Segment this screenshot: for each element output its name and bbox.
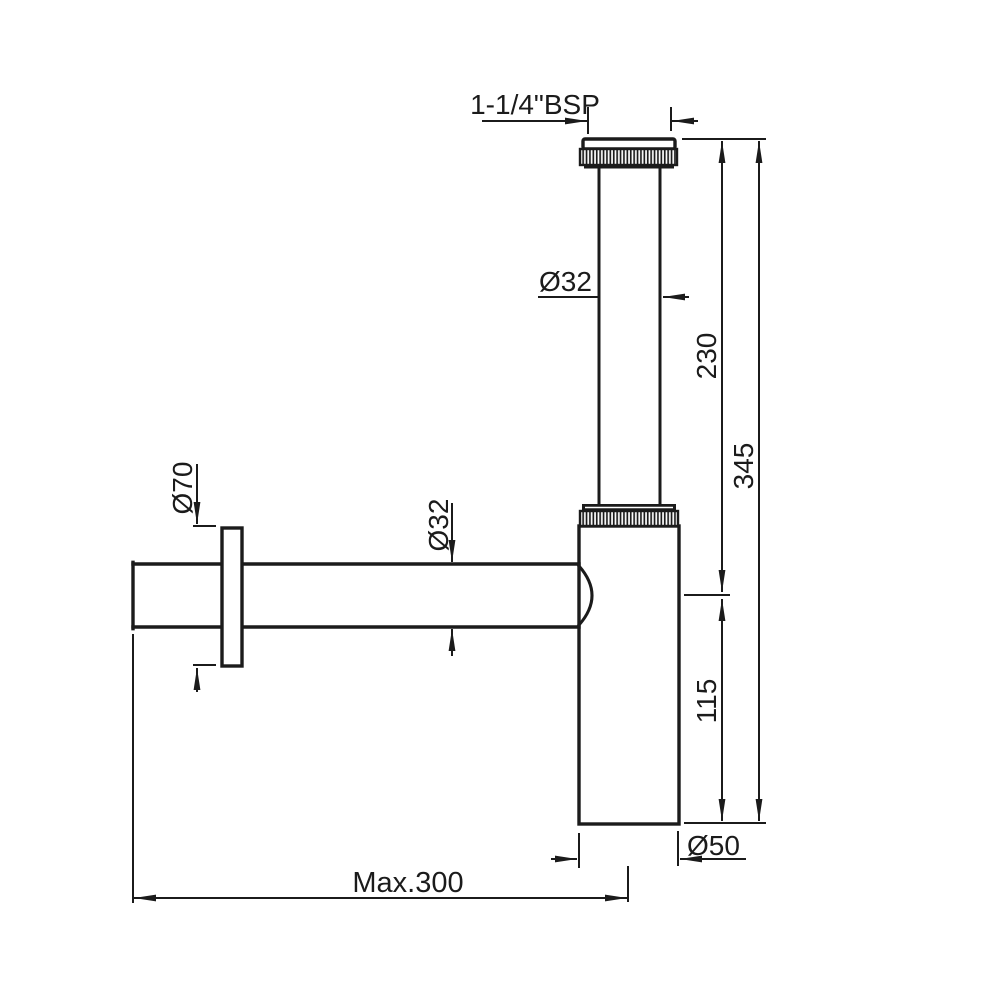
body-nut-knurl [580,511,678,526]
dim-tailpipe-length: 230 [691,141,722,592]
top-nut-cap [583,139,675,149]
dim-tailpipe-diameter: Ø32 [538,266,689,297]
top-nut-knurl [580,149,677,165]
tailpipe-diameter-label: Ø32 [539,266,592,297]
top-compression-nut [580,139,677,169]
body-diameter-label: Ø50 [687,830,740,861]
overall-height-label: 345 [728,443,759,490]
waste-pipe [133,562,592,628]
thread-size-label: 1-1/4"BSP [470,89,600,120]
trap-assembly [133,139,679,824]
body-compression-nut [580,504,678,526]
tailpipe-length-label: 230 [691,333,722,380]
bottle-trap-drawing: 1-1/4"BSP Ø32 230 115 345 Ø70 [0,0,1000,1000]
dim-body-height: 115 [691,599,722,821]
body-height-label: 115 [691,679,722,724]
dim-flange-diameter: Ø70 [167,462,216,692]
flange-diameter-label: Ø70 [167,462,198,515]
trap-body [579,526,679,824]
top-nut-base [584,165,674,169]
drawing-canvas: 1-1/4"BSP Ø32 230 115 345 Ø70 [0,0,1000,1000]
dim-thread-size: 1-1/4"BSP [470,89,698,134]
dim-overall-height: 345 [728,141,759,821]
tail-pipe [599,167,660,504]
max-reach-label: Max.300 [352,867,463,899]
dim-wastepipe-diameter: Ø32 [423,499,454,656]
wall-flange [222,528,242,666]
dim-max-reach: Max.300 [133,634,628,903]
wastepipe-diameter-label: Ø32 [423,499,454,552]
dim-body-diameter: Ø50 [551,830,746,868]
